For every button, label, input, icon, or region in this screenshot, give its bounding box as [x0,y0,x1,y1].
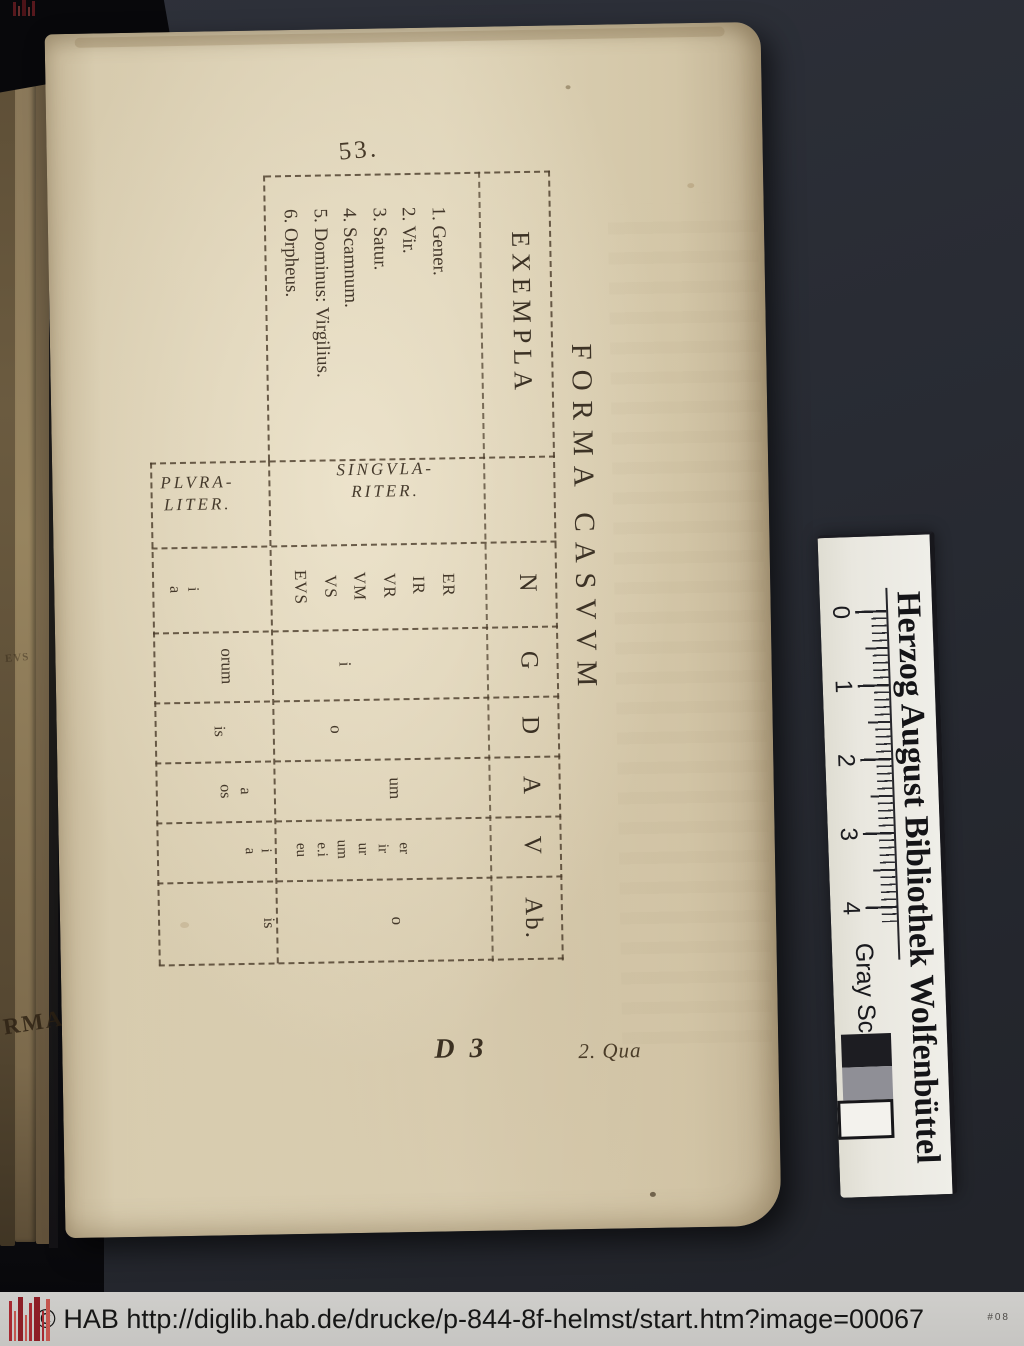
ruler-number: 2 [831,749,860,772]
page-edge-strip [0,50,15,1246]
page-top-edge [75,26,725,47]
singular-ablative-ending: o [386,878,407,963]
singular-genitive-ending: i [334,629,355,699]
catchword: 2. Qua [578,1038,642,1064]
singular-band-label: SINGVLA- RITER. [310,457,461,544]
column-header-genitive: G [492,626,543,697]
page-number: 53. [337,135,380,166]
plural-nominative-endings: i a [165,547,202,633]
footer-marker: #08 [987,1312,1010,1323]
paper-speck [687,183,694,188]
plural-ablative-ending: is [258,880,277,965]
plural-dative-ending: is [209,701,228,761]
column-header-ablative: Ab. [496,876,547,962]
scan-viewport: EVS RMA 53. FORMA CASVVM [0,0,1024,1346]
edge-text-fragment: EVS [5,651,30,665]
table-rule [548,171,564,961]
singular-nominative-endings: ER IR VR VM VS EVS [286,542,464,630]
book-page: 53. FORMA CASVVM EXEMPL [45,22,782,1238]
gathering-signature: D 3 [434,1033,488,1066]
declension-table: EXEMPLA N G D A V Ab. 1. Gener. 2. Vir. … [145,171,564,968]
ruler-number: 1 [828,675,857,698]
paper-speck [566,85,571,89]
red-registration-mark [9,1297,50,1341]
plural-vocative-endings: i a [241,820,274,881]
column-header-vocative: V [495,816,546,877]
table-rule [263,176,270,461]
grayscale-white-patch [837,1099,894,1140]
paper-speck [650,1192,656,1197]
example-item: 2. Vir. [394,207,428,457]
plural-genitive-ending: orum [216,631,237,701]
grayscale-ruler-card: Herzog August Bibliothek Wolfenbüttel 0 … [817,531,957,1198]
column-header-dative: D [493,696,544,757]
example-item: 3. Satur. [364,207,398,457]
attribution-url: © HAB http://diglib.hab.de/drucke/p-844-… [0,1292,960,1346]
ink-bleedthrough [608,202,773,1044]
singular-accusative-ending: um [384,758,405,818]
rotated-table-block: FORMA CASVVM EXEMPLA N G [142,170,616,968]
example-list: 1. Gener. 2. Vir. 3. Satur. 4. Scamnum. … [276,206,457,459]
plural-band-label: PLVRA- LITER. [122,470,273,557]
singular-vocative-endings: er ir ur um e.i eu [290,818,415,880]
singular-dative-ending: o [325,699,346,759]
grayscale-black-patch [841,1033,892,1068]
table-title: FORMA CASVVM [561,170,606,870]
ruler-number: 3 [834,823,863,846]
ruler-number: 0 [826,601,855,624]
attribution-footer: © HAB http://diglib.hab.de/drucke/p-844-… [0,1292,1024,1346]
example-item: 5. Dominus: Virgilius. [305,208,339,458]
column-header-accusative: A [494,756,545,817]
red-registration-mark [13,0,35,16]
grayscale-gray-patch [842,1066,893,1101]
example-item: 6. Orpheus. [276,209,310,459]
column-header-nominative: N [490,541,541,627]
ruler-number: 4 [836,897,865,920]
example-item: 1. Gener. [423,206,457,456]
column-header-exempla: EXEMPLA [484,171,539,457]
example-item: 4. Scamnum. [335,208,369,458]
plural-accusative-endings: a os [214,761,255,822]
